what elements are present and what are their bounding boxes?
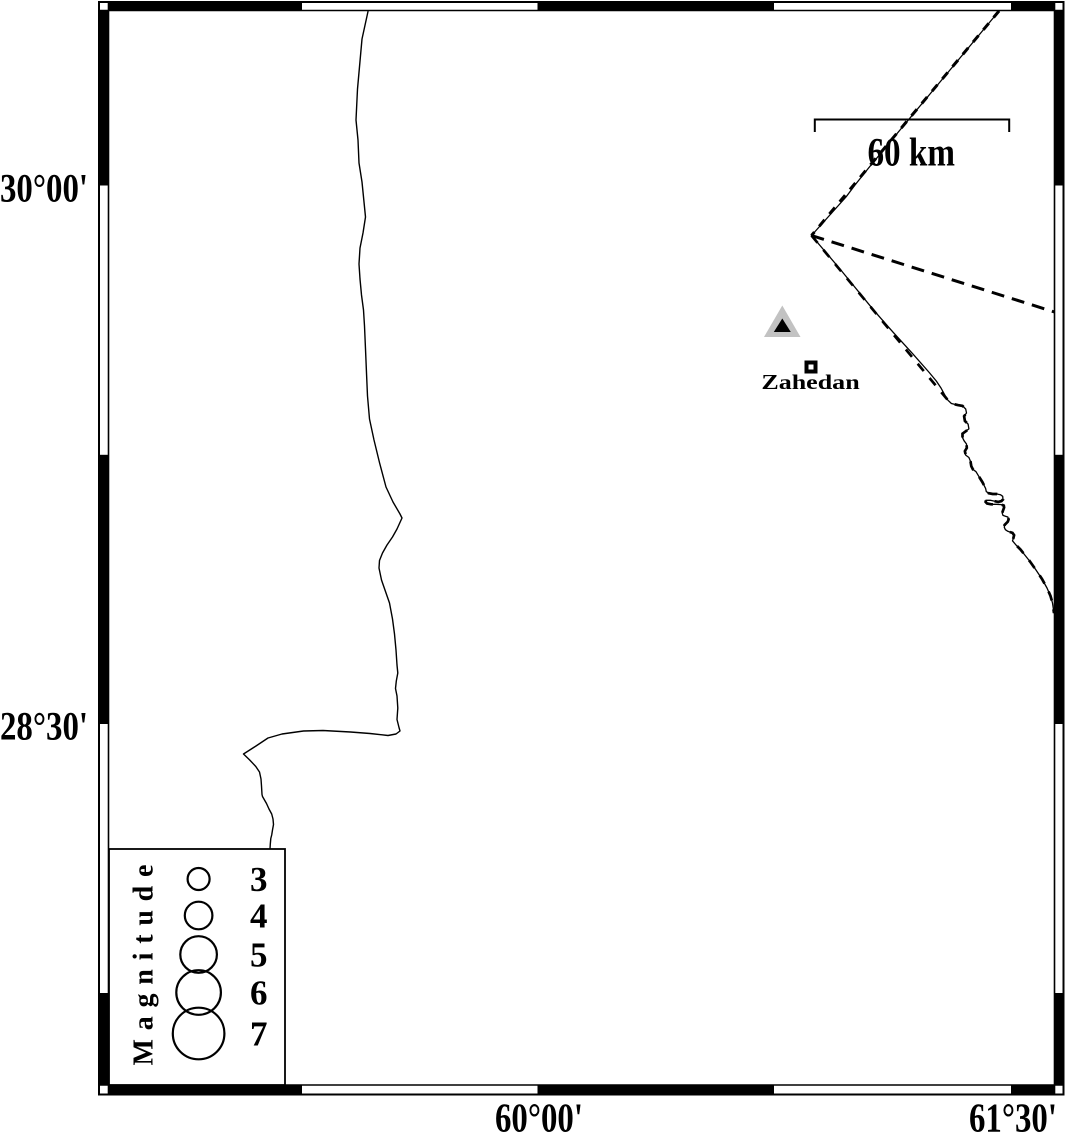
svg-text:6: 6 (250, 974, 268, 1013)
svg-text:3: 3 (250, 860, 268, 899)
svg-text:60°00': 60°00' (495, 1095, 583, 1134)
svg-text:5: 5 (250, 936, 268, 975)
svg-text:4: 4 (250, 897, 268, 936)
svg-text:30°00': 30°00' (0, 166, 88, 211)
svg-text:28°30': 28°30' (0, 703, 88, 748)
svg-text:61°30': 61°30' (969, 1095, 1057, 1134)
svg-text:7: 7 (250, 1015, 268, 1054)
svg-text:Zahedan: Zahedan (761, 371, 859, 394)
svg-text:60 km: 60 km (867, 130, 955, 175)
